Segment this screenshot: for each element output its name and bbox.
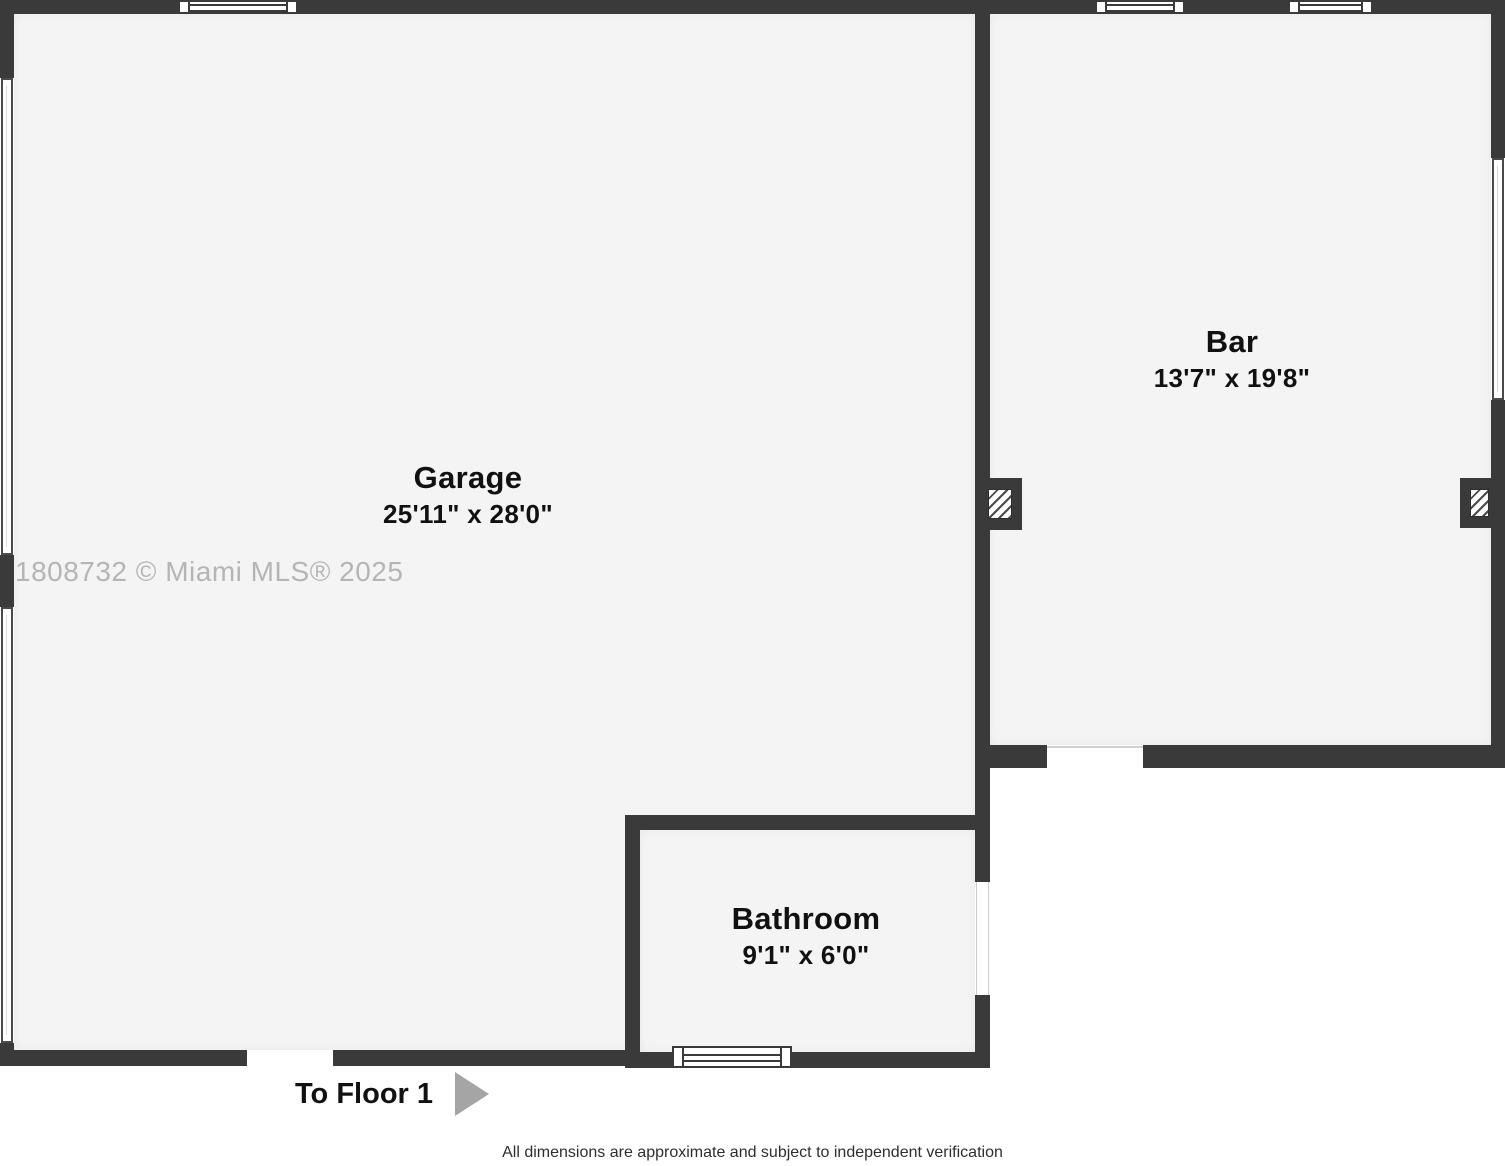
bar-dimensions: 13'7" x 19'8" [1082,363,1382,394]
to-floor-1-label: To Floor 1 [295,1078,433,1111]
structural-column-center [978,478,1022,530]
bathroom-bottom-wall-left [625,1052,672,1068]
left-wall-window-upper [1,78,13,555]
bar-top-window-right [1288,0,1373,14]
column-hatch-icon [988,489,1012,519]
window-cap [1173,2,1183,12]
window-cap [180,2,190,12]
window-glass [190,2,286,12]
window-glass [684,1048,780,1066]
window-cap [286,2,296,12]
garage-top-window [178,0,298,14]
garage-dimensions: 25'11" x 28'0" [318,499,618,530]
bathroom-top-wall [625,815,990,830]
bathroom-name: Bathroom [656,901,956,937]
bar-bottom-wall-left [975,745,1047,768]
window-glass [1300,2,1361,12]
bathroom-dimensions: 9'1" x 6'0" [656,940,956,971]
column-hatch-icon [1470,489,1489,517]
window-cap [674,1048,684,1066]
right-arrow-icon [455,1072,489,1116]
to-floor-1-indicator: To Floor 1 [295,1072,489,1116]
bar-right-wall-window [1492,158,1504,400]
bar-right-wall-main [1491,400,1505,768]
window-cap [1097,2,1107,12]
structural-column-right [1460,478,1499,528]
window-cap [780,1048,790,1066]
garage-name: Garage [318,460,618,496]
left-wall-window-lower [1,607,13,1043]
garage-bottom-wall-right [333,1050,640,1066]
window-glass [1107,2,1173,12]
mls-watermark: 1808732 © Miami MLS® 2025 [15,556,403,588]
window-cap [1361,2,1371,12]
garage-label: Garage 25'11" x 28'0" [318,460,618,530]
floor-plan-canvas: Garage 25'11" x 28'0" Bar 13'7" x 19'8" … [0,0,1505,1166]
bathroom-bottom-window [672,1046,792,1068]
bathroom-bottom-wall-right [792,1052,990,1068]
left-wall-top-segment [0,0,14,78]
disclaimer-text: All dimensions are approximate and subje… [0,1144,1505,1162]
bathroom-left-wall [625,815,640,1055]
bar-bottom-wall-right [1143,745,1505,768]
bar-door-opening [1047,746,1143,767]
bathroom-label: Bathroom 9'1" x 6'0" [656,901,956,971]
bar-label: Bar 13'7" x 19'8" [1082,324,1382,394]
left-wall-mid-segment [0,555,14,607]
garage-bottom-wall-left [0,1050,247,1066]
bar-right-wall-top [1491,0,1505,158]
stairway-opening [247,1050,333,1066]
bathroom-door-opening [976,882,989,995]
window-cap [1290,2,1300,12]
bar-name: Bar [1082,324,1382,360]
bar-top-window-left [1095,0,1185,14]
